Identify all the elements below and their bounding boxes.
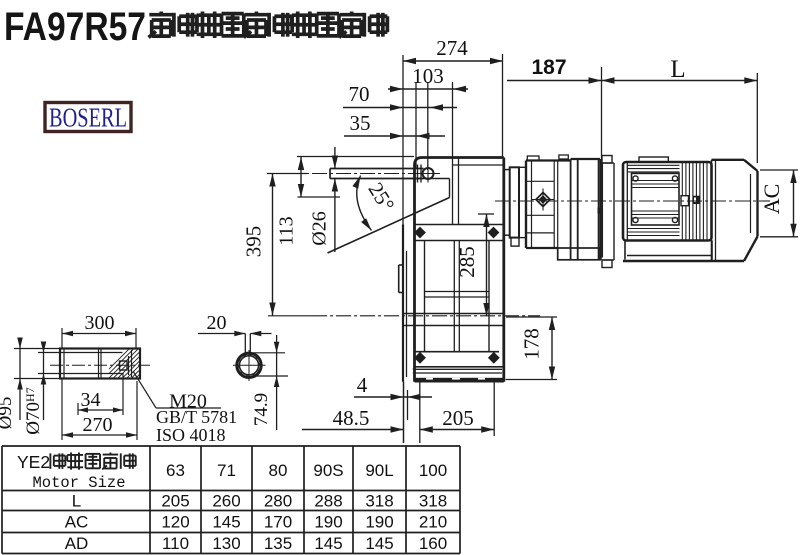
svg-text:20: 20: [207, 312, 227, 334]
svg-text:74.9: 74.9: [251, 393, 272, 426]
svg-text:AD: AD: [65, 534, 89, 553]
svg-text:145: 145: [365, 534, 393, 553]
svg-text:L: L: [670, 56, 685, 83]
svg-text:BOSERL: BOSERL: [49, 103, 127, 133]
svg-text:Ø70H7: Ø70H7: [23, 387, 44, 434]
svg-text:318: 318: [419, 492, 447, 511]
svg-text:120: 120: [161, 513, 189, 532]
svg-text:90S: 90S: [313, 461, 343, 480]
svg-text:145: 145: [212, 513, 240, 532]
svg-text:103: 103: [412, 64, 444, 88]
svg-text:AC: AC: [65, 513, 89, 532]
svg-text:48.5: 48.5: [333, 406, 370, 430]
svg-text:270: 270: [83, 414, 113, 436]
svg-text:187: 187: [531, 56, 566, 79]
svg-text:Ø95: Ø95: [0, 397, 16, 430]
svg-text:90L: 90L: [365, 461, 393, 480]
svg-text:260: 260: [212, 492, 240, 511]
svg-text:FA97R57: FA97R57: [4, 5, 146, 49]
svg-text:135: 135: [264, 534, 292, 553]
svg-text:160: 160: [419, 534, 447, 553]
svg-text:145: 145: [314, 534, 342, 553]
svg-text:190: 190: [314, 513, 342, 532]
svg-text:274: 274: [436, 36, 468, 60]
svg-text:190: 190: [365, 513, 393, 532]
svg-text:178: 178: [520, 328, 544, 360]
svg-text:130: 130: [212, 534, 240, 553]
svg-text:63: 63: [166, 461, 185, 480]
svg-text:Motor Size: Motor Size: [32, 474, 125, 492]
svg-text:100: 100: [419, 461, 447, 480]
svg-text:280: 280: [264, 492, 292, 511]
svg-text:285: 285: [455, 246, 479, 278]
svg-text:80: 80: [269, 461, 288, 480]
svg-text:GB/T 5781: GB/T 5781: [156, 407, 237, 427]
svg-text:205: 205: [442, 406, 474, 430]
svg-text:71: 71: [217, 461, 236, 480]
svg-text:25°: 25°: [363, 178, 399, 216]
svg-text:L: L: [72, 492, 81, 511]
svg-text:205: 205: [161, 492, 189, 511]
svg-text:300: 300: [85, 312, 115, 334]
svg-text:110: 110: [162, 534, 189, 553]
svg-text:ISO 4018: ISO 4018: [156, 425, 226, 445]
svg-text:170: 170: [264, 513, 292, 532]
svg-text:35: 35: [350, 111, 371, 135]
svg-text:395: 395: [242, 226, 266, 258]
svg-text:YE2: YE2: [17, 452, 50, 472]
svg-text:4: 4: [357, 373, 368, 397]
svg-text:AC: AC: [759, 184, 784, 215]
svg-text:288: 288: [314, 492, 342, 511]
svg-text:210: 210: [419, 513, 447, 532]
svg-text:113: 113: [276, 216, 298, 245]
svg-text:34: 34: [81, 389, 101, 411]
svg-text:Ø26: Ø26: [309, 211, 331, 245]
svg-text:318: 318: [365, 492, 393, 511]
svg-text:70: 70: [349, 82, 370, 106]
